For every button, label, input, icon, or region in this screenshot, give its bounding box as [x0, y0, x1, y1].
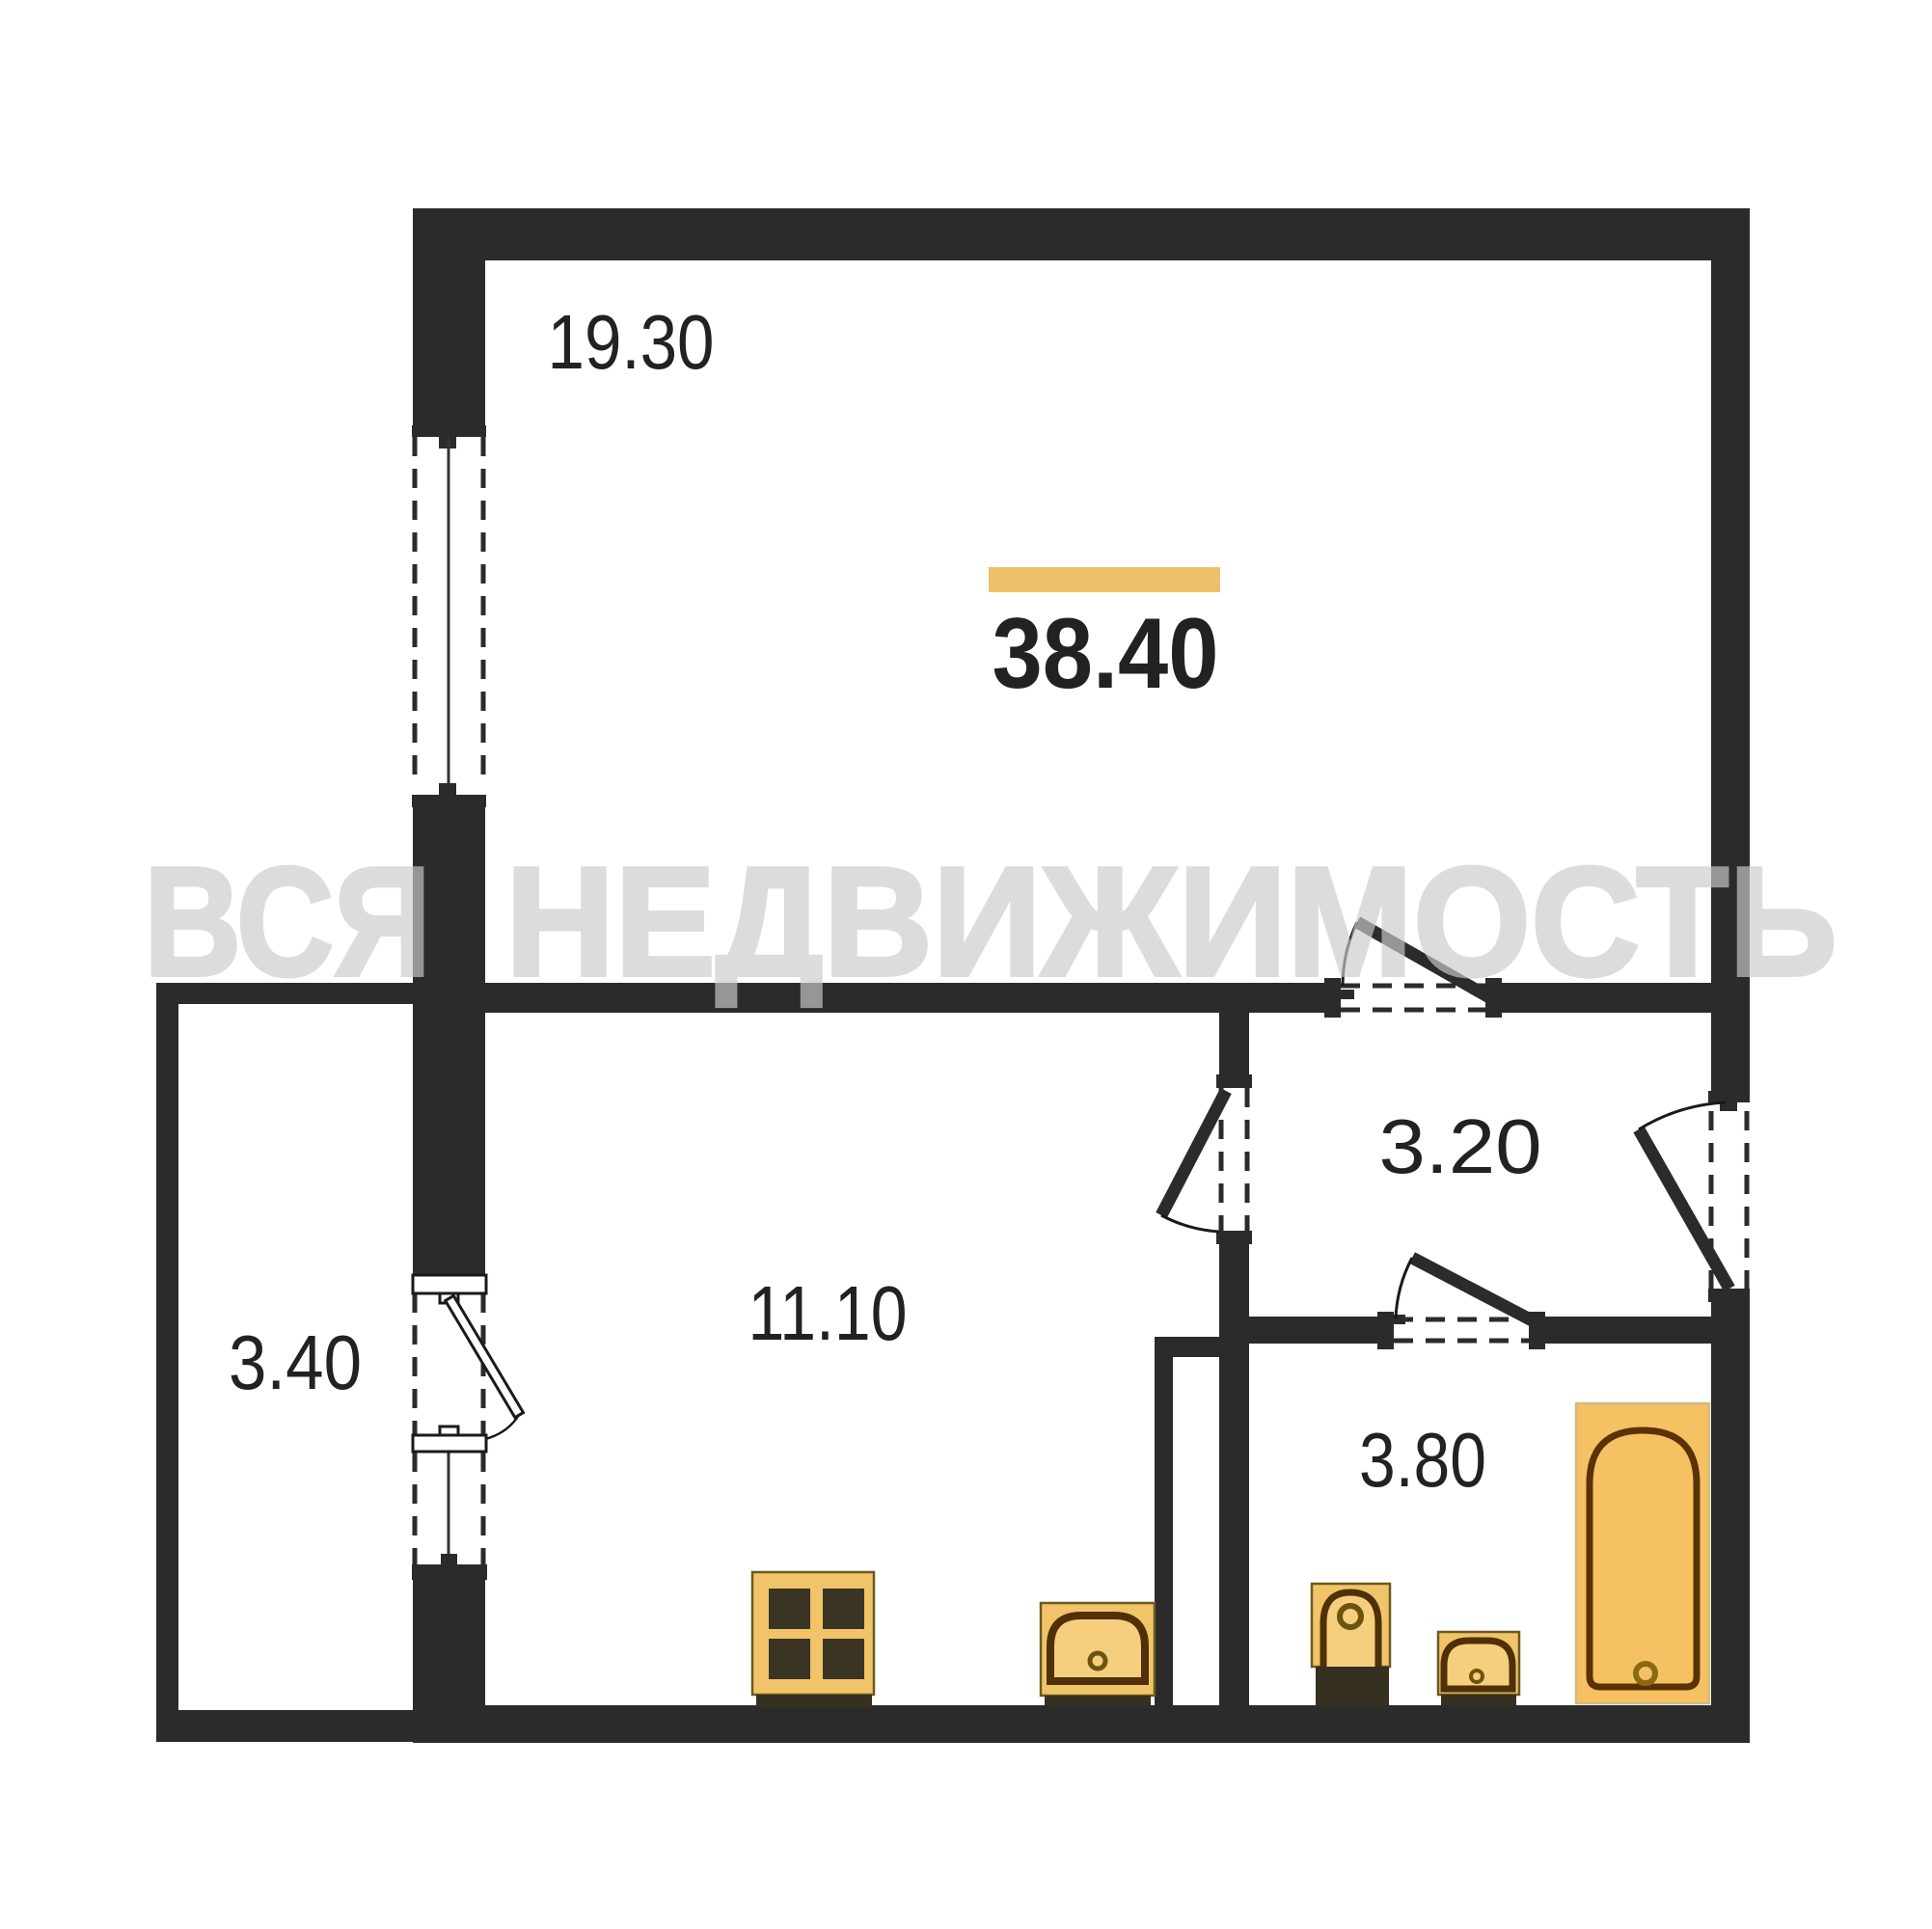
svg-text:11.10: 11.10 [748, 1270, 908, 1356]
svg-text:3.20: 3.20 [1379, 1103, 1542, 1189]
svg-text:38.40: 38.40 [993, 598, 1219, 710]
svg-text:3.40: 3.40 [229, 1319, 362, 1405]
svg-text:19.30: 19.30 [548, 299, 715, 385]
svg-text:3.80: 3.80 [1359, 1417, 1486, 1503]
svg-text:ВСЯ: ВСЯ [144, 835, 431, 1009]
svg-text:НЕДВИЖИМОСТЬ: НЕДВИЖИМОСТЬ [505, 835, 1837, 1009]
